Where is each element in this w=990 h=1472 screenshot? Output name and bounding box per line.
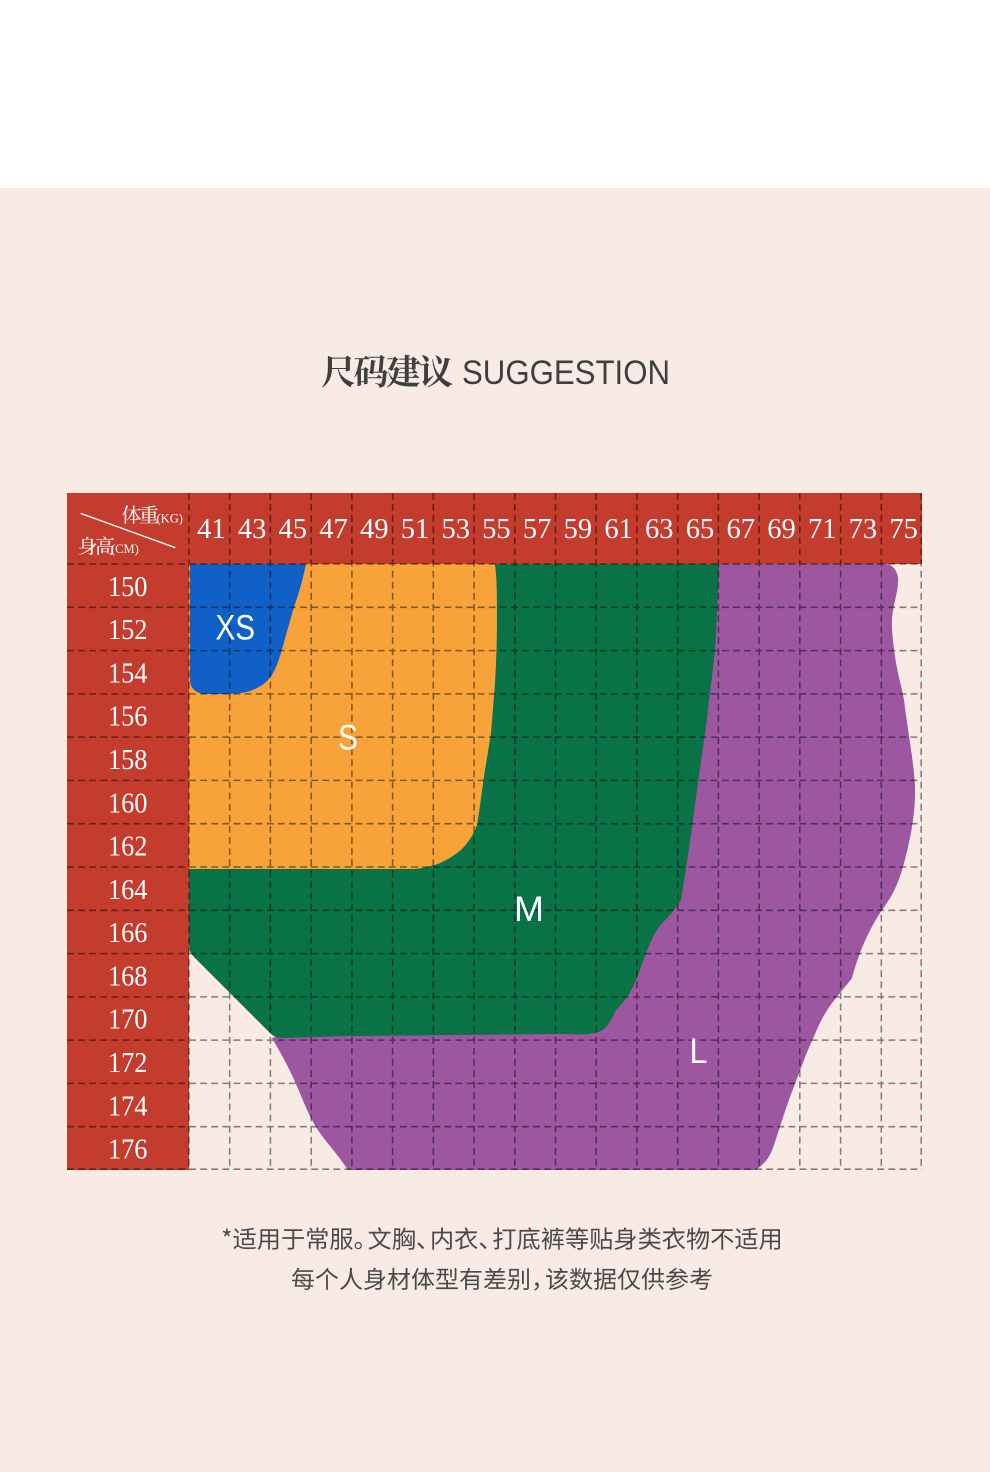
svg-text:71: 71 <box>808 514 837 545</box>
svg-text:S: S <box>338 718 358 757</box>
svg-text:170: 170 <box>108 1005 148 1036</box>
svg-text:55: 55 <box>482 514 511 545</box>
svg-text:160: 160 <box>108 788 148 819</box>
svg-text:53: 53 <box>441 514 470 545</box>
svg-text:59: 59 <box>564 514 593 545</box>
svg-text:49: 49 <box>360 514 389 545</box>
svg-text:XS: XS <box>216 609 256 648</box>
svg-text:158: 158 <box>108 745 148 776</box>
svg-text:67: 67 <box>727 514 756 545</box>
svg-text:63: 63 <box>645 514 674 545</box>
svg-text:154: 154 <box>108 658 148 689</box>
svg-text:(CM): (CM) <box>111 542 139 556</box>
svg-text:174: 174 <box>108 1091 148 1122</box>
svg-text:150: 150 <box>108 572 148 603</box>
svg-text:75: 75 <box>889 514 918 545</box>
svg-text:172: 172 <box>108 1048 148 1079</box>
svg-text:156: 156 <box>108 702 148 733</box>
svg-text:51: 51 <box>401 514 430 545</box>
svg-text:73: 73 <box>849 514 878 545</box>
svg-text:47: 47 <box>319 514 348 545</box>
svg-text:176: 176 <box>108 1135 148 1166</box>
svg-text:L: L <box>690 1032 708 1071</box>
svg-text:M: M <box>514 890 544 929</box>
svg-text:152: 152 <box>108 615 148 646</box>
svg-text:43: 43 <box>238 514 267 545</box>
svg-text:45: 45 <box>279 514 308 545</box>
svg-text:162: 162 <box>108 832 148 863</box>
svg-text:69: 69 <box>767 514 796 545</box>
svg-text:65: 65 <box>686 514 715 545</box>
svg-text:(KG): (KG) <box>157 511 183 525</box>
svg-text:166: 166 <box>108 918 148 949</box>
svg-text:168: 168 <box>108 961 148 992</box>
svg-text:SUGGESTION: SUGGESTION <box>462 354 670 392</box>
svg-text:61: 61 <box>604 514 633 545</box>
svg-text:57: 57 <box>523 514 552 545</box>
svg-text:41: 41 <box>197 514 226 545</box>
svg-text:164: 164 <box>108 875 148 906</box>
